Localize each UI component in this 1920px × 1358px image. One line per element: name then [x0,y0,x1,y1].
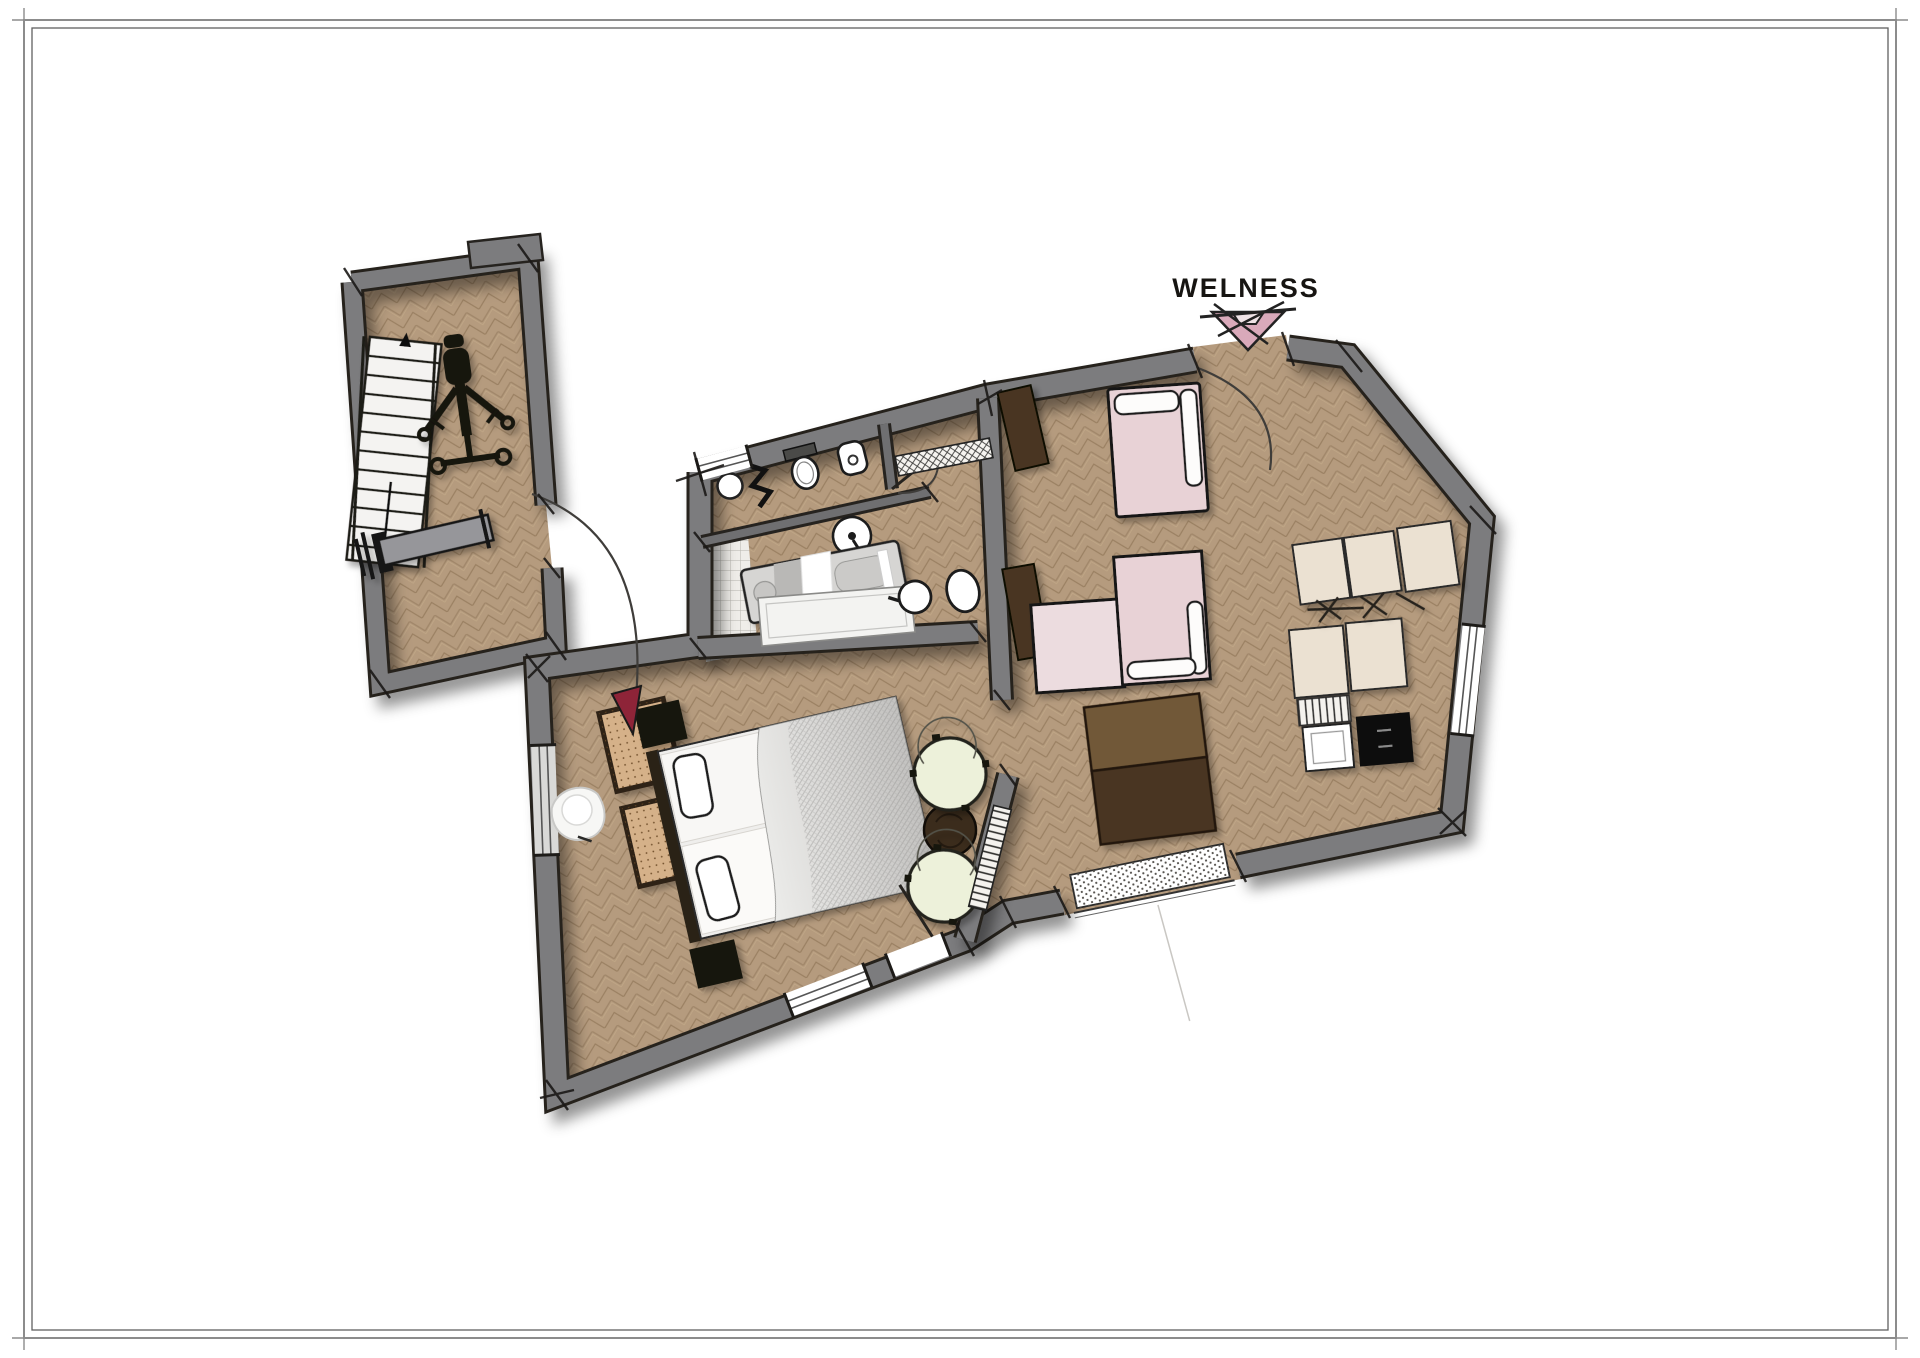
pillow [1127,658,1196,680]
desk [1084,693,1216,844]
cooktop [1356,712,1414,767]
chaise [1031,599,1125,693]
daybed [1108,383,1209,517]
welness-label: WELNESS [1172,273,1320,303]
cabinet [1346,618,1408,691]
drainer [1297,695,1351,725]
apartment [530,335,1486,1095]
floor-plan: WELNESS [0,0,1920,1358]
fitness-room [340,234,556,684]
sink [1302,723,1354,771]
floor-plan-page: WELNESS [0,0,1920,1358]
pillow [1114,390,1179,414]
threshold-line [1158,903,1190,1022]
cabinet [1289,626,1349,698]
